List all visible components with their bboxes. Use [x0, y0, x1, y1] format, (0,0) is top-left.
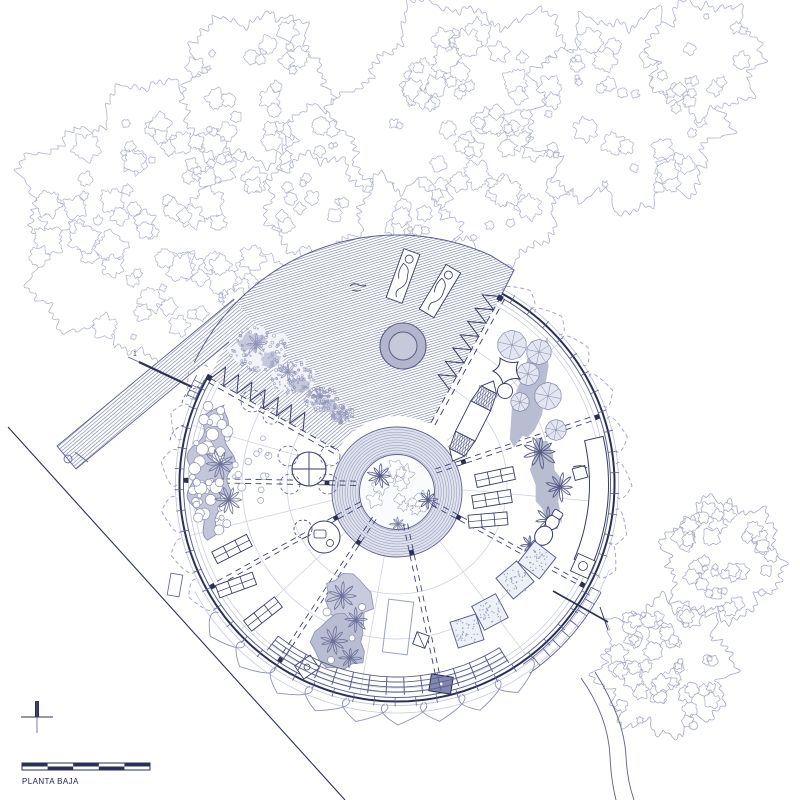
svg-text:PLANTA BAJA: PLANTA BAJA [22, 777, 79, 786]
svg-text:1: 1 [133, 351, 137, 358]
